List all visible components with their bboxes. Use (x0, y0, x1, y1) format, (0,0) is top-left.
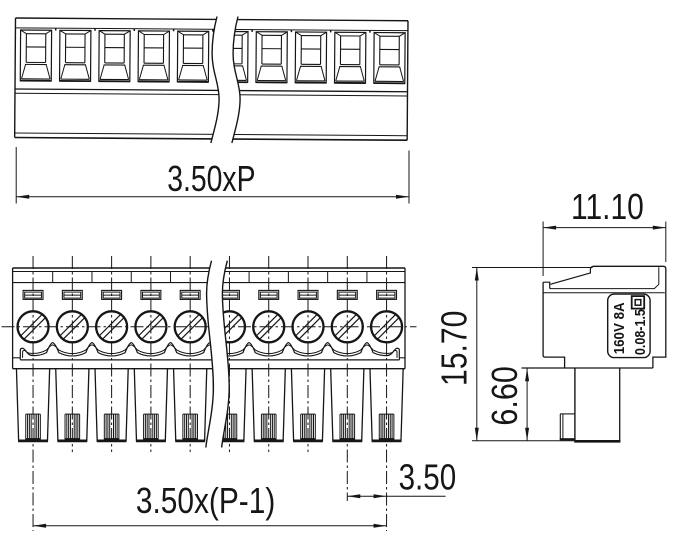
svg-text:6.60: 6.60 (484, 366, 525, 426)
svg-text:3.50xP: 3.50xP (167, 158, 255, 199)
svg-text:160V 8A: 160V 8A (611, 302, 628, 354)
svg-text:15.70: 15.70 (434, 311, 475, 386)
svg-text:3.50x(P-1): 3.50x(P-1) (136, 480, 275, 521)
svg-text:3.50: 3.50 (399, 457, 457, 498)
svg-text:11.10: 11.10 (571, 186, 644, 227)
svg-text:0.08-1.5: 0.08-1.5 (632, 309, 649, 355)
